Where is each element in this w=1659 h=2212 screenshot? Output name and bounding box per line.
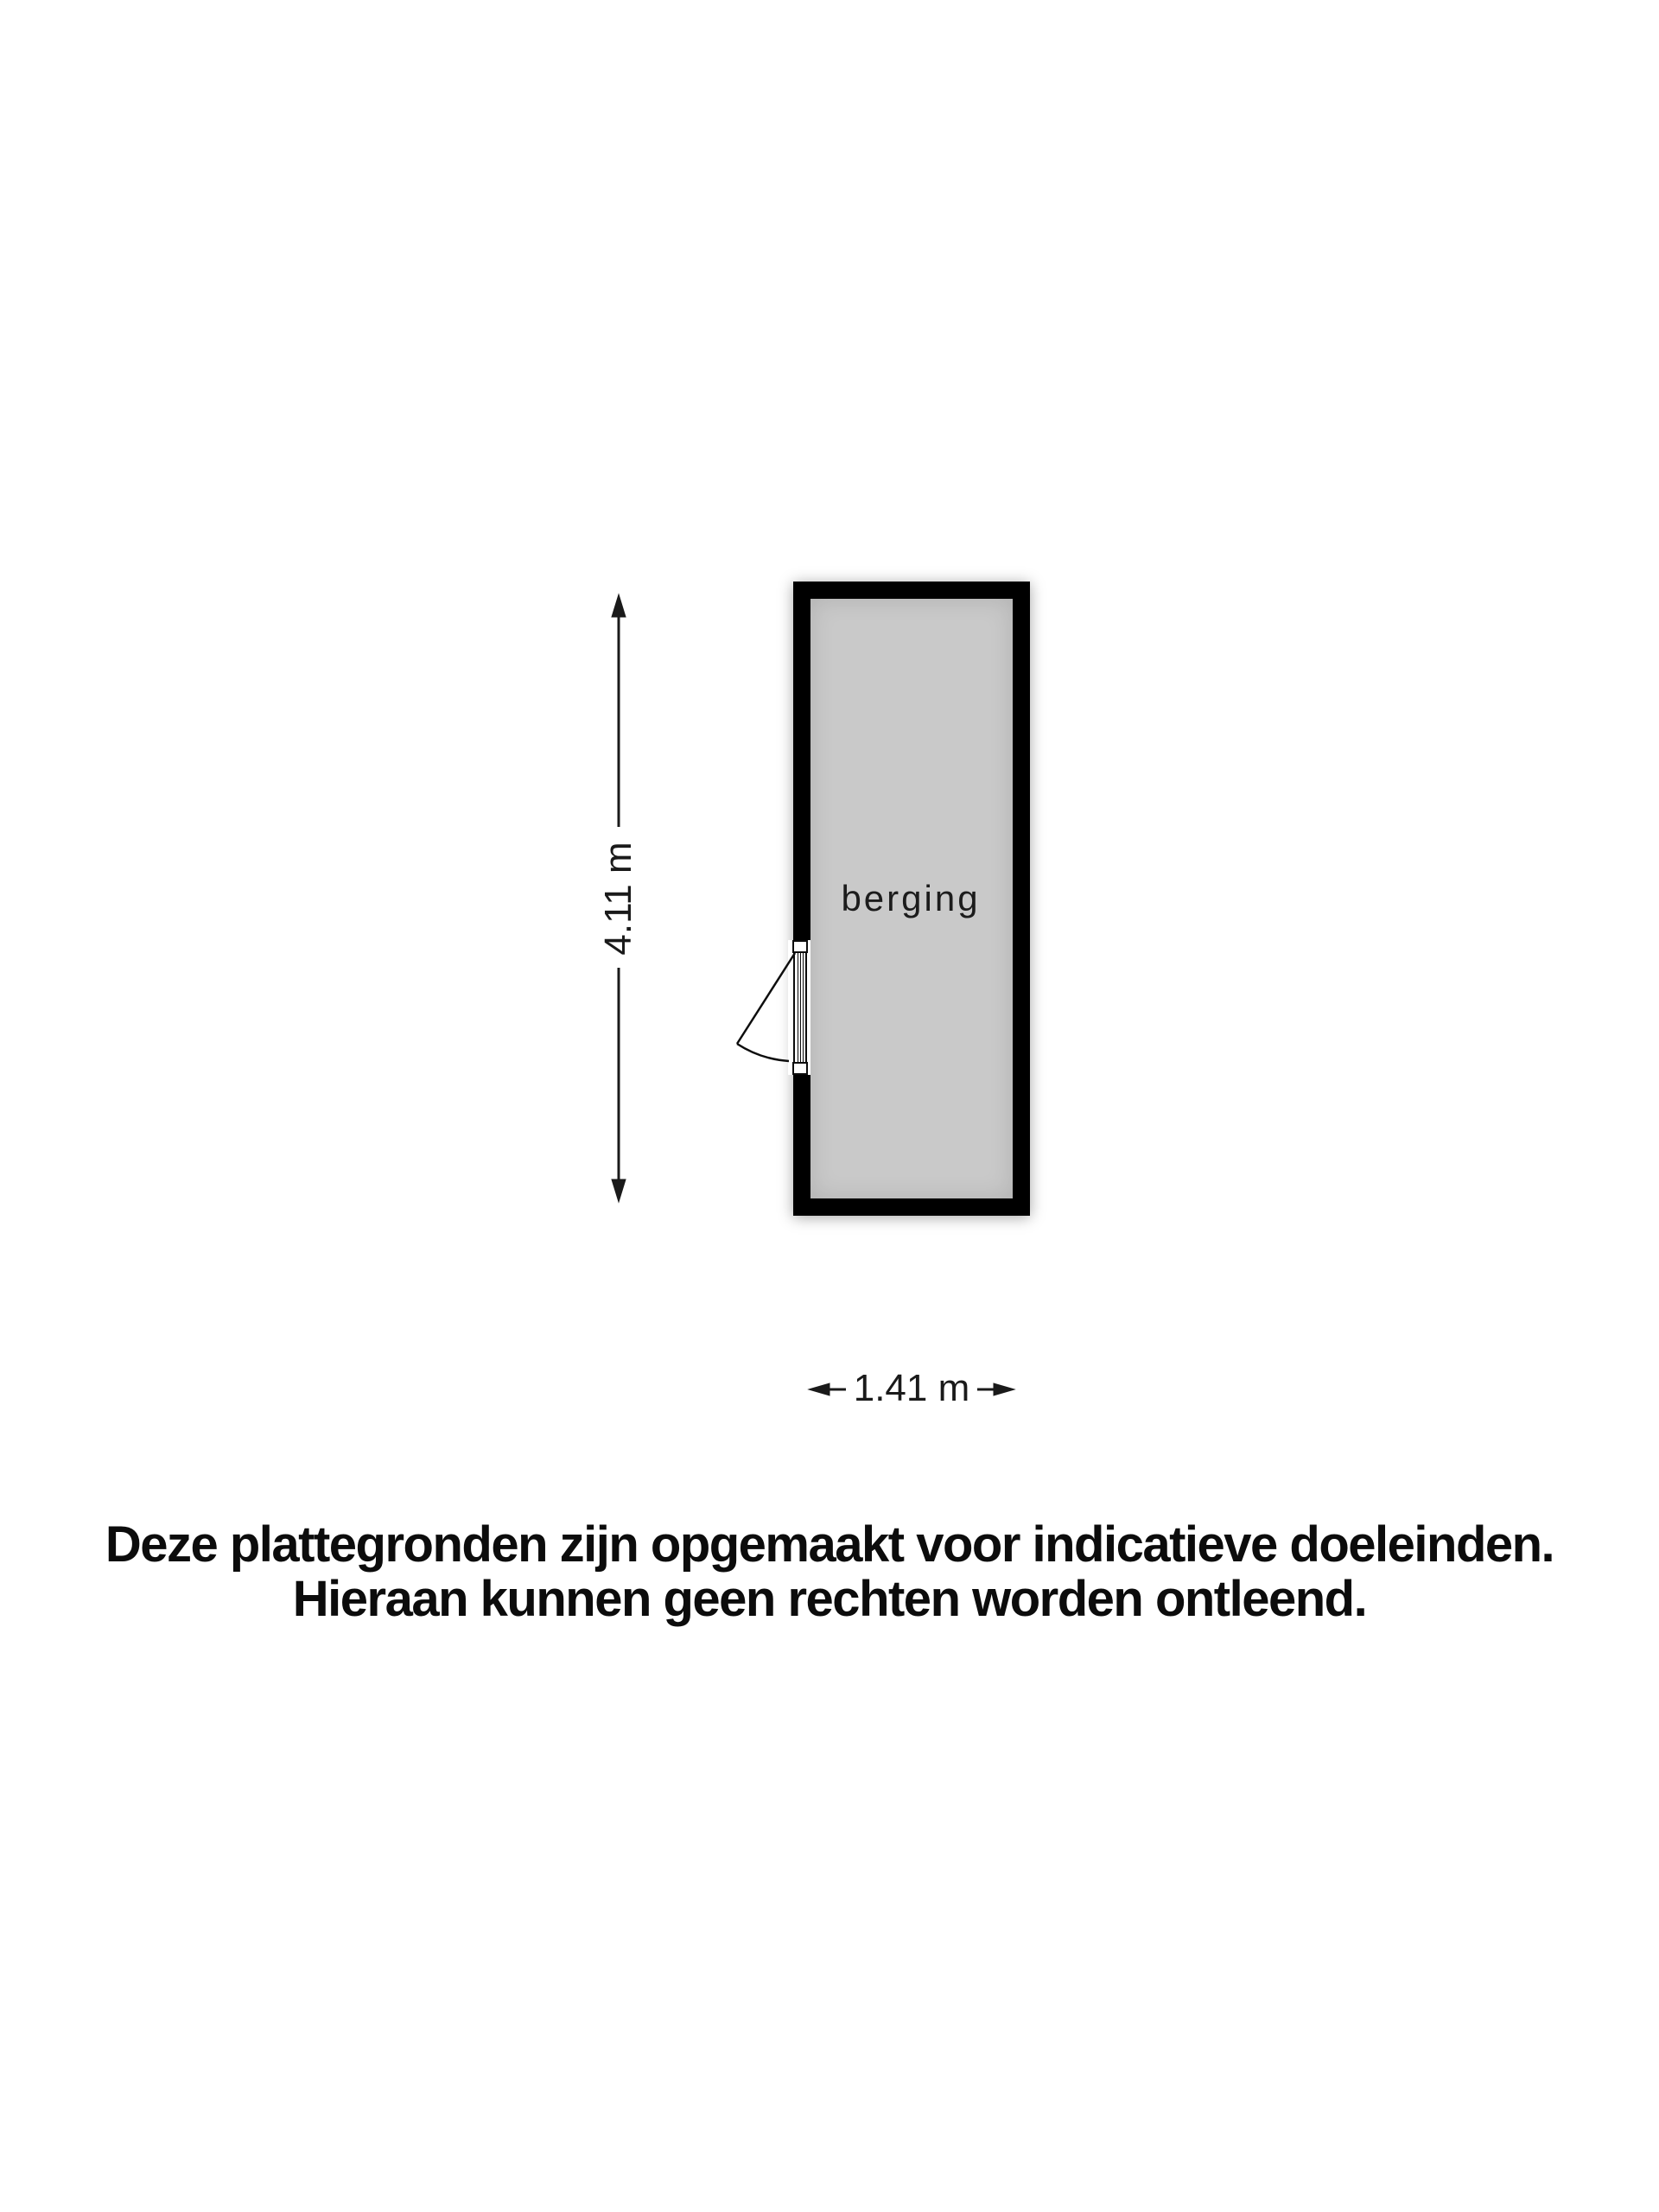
disclaimer-line-1: Deze plattegronden zijn opgemaakt voor i…: [0, 1517, 1659, 1572]
door-swing-arc: [737, 1044, 789, 1061]
disclaimer-text: Deze plattegronden zijn opgemaakt voor i…: [0, 1517, 1659, 1626]
floorplan-canvas: berging 4.11 m 1.41 m Deze plattegronden…: [0, 0, 1659, 2212]
height-dimension-label: 4.11 m: [597, 769, 640, 1028]
door-swing-leaf-open: [737, 953, 795, 1044]
arrow-up-icon: [612, 594, 626, 617]
disclaimer-line-2: Hieraan kunnen geen rechten worden ontle…: [0, 1572, 1659, 1626]
arrow-down-icon: [612, 1179, 626, 1202]
room-label-berging: berging: [781, 876, 1040, 921]
width-dimension-label: 1.41 m: [782, 1366, 1041, 1411]
door-opening: [788, 940, 810, 1075]
